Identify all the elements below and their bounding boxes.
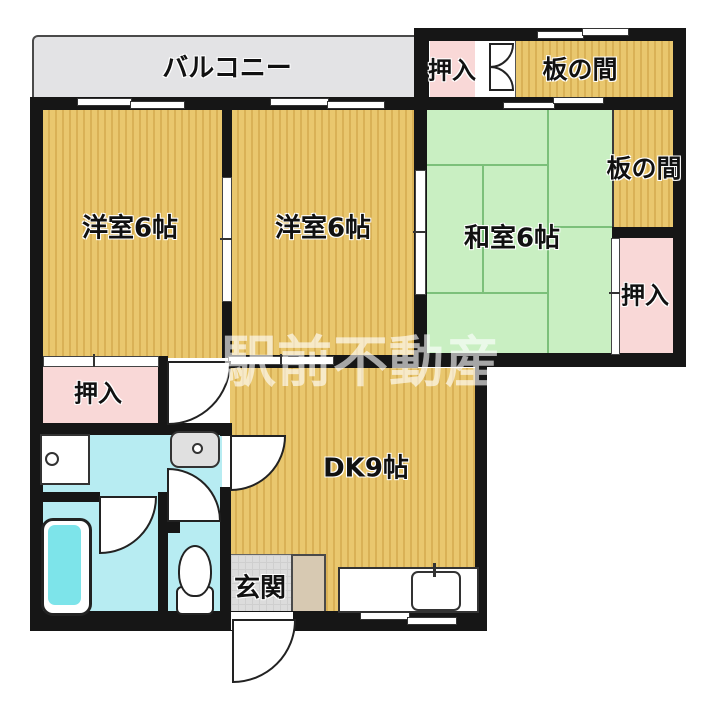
closet-right-door-tick — [609, 292, 620, 294]
wall-closet-left-side — [158, 356, 168, 425]
realtor-watermark: 駅前不動産 — [221, 317, 501, 397]
closet-left-door-tick — [93, 354, 95, 367]
tatami-line — [427, 164, 548, 166]
balcony-window-2b — [327, 101, 385, 109]
wood-floor-top-label: 板の間 — [542, 50, 617, 86]
fusuma-tick — [220, 238, 232, 240]
balcony-window-1a — [77, 98, 132, 106]
japanese-room-label: 和室6帖 — [464, 218, 560, 255]
floorplan-canvas: バルコニー 洋室6帖 洋室6帖 和室6帖 DK9帖 板の間 板の間 押入 押入 … — [0, 0, 720, 712]
closet-left-sliding-door — [43, 356, 159, 367]
fusuma-tick — [413, 231, 426, 233]
kitchen-faucet-icon — [433, 563, 436, 577]
top-right-window-b — [582, 28, 629, 36]
closet-left-label: 押入 — [74, 374, 122, 409]
closet-top-label: 押入 — [428, 51, 476, 86]
wall-bath-dk-lower — [220, 487, 231, 612]
closet-right-sliding-door — [611, 238, 620, 355]
washing-pan-drain-icon — [45, 452, 59, 466]
wall-washroom-divider — [30, 492, 100, 502]
western-room-2-label: 洋室6帖 — [275, 208, 371, 245]
top-right-window-a — [537, 31, 584, 39]
dining-kitchen-label: DK9帖 — [323, 448, 409, 485]
western-room-1-label: 洋室6帖 — [82, 208, 178, 245]
toilet-bowl — [178, 545, 212, 597]
bathtub-water — [48, 525, 81, 605]
wall-right-outer — [673, 28, 686, 367]
wood-floor-right-label: 板の間 — [606, 149, 681, 185]
wall-toilet-stub — [158, 521, 180, 533]
closet-top-door-zone — [475, 41, 515, 97]
shoe-cabinet — [291, 554, 326, 613]
kitchen-window-b — [407, 617, 457, 625]
wall-balcony-divider — [414, 28, 429, 110]
wall-bath-toilet — [158, 492, 168, 612]
balcony-window-1b — [130, 101, 185, 109]
wall-bath-dk-stub — [220, 423, 231, 436]
japanese-room-slider-a — [503, 102, 555, 109]
kitchen-sink — [411, 571, 461, 611]
closet-right-label: 押入 — [621, 276, 669, 311]
entrance-door-gap — [231, 612, 293, 630]
tatami-line — [427, 292, 548, 294]
balcony-label: バルコニー — [162, 48, 291, 85]
entrance-label: 玄関 — [234, 568, 286, 605]
kitchen-window-a — [360, 612, 410, 620]
wall-woodstrip-closet — [612, 227, 686, 238]
japanese-room-slider-b — [553, 97, 604, 104]
balcony-window-2a — [270, 98, 329, 106]
wash-basin-drain-icon — [192, 443, 203, 454]
